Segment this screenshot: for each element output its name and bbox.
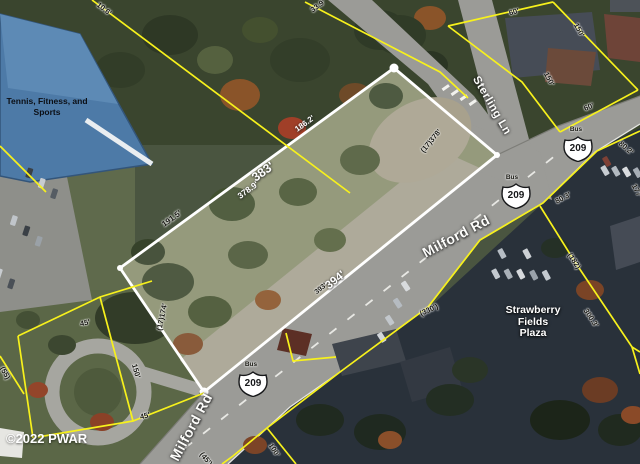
route-banner-bus: Bus — [506, 175, 518, 182]
route-number: 209 — [238, 378, 268, 389]
place-label-tennis-fitness-sports: Tennis, Fitness, and Sports — [6, 96, 87, 118]
route-number: 209 — [563, 143, 593, 154]
parcel-vertex — [117, 265, 123, 271]
route-209-shield: 209 — [238, 371, 268, 397]
route-number: 209 — [501, 190, 531, 201]
lot-dimension-label: 45' — [79, 318, 90, 327]
route-banner-bus: Bus — [245, 362, 257, 369]
place-label-strawberry-fields-plaza: Strawberry Fields Plaza — [506, 305, 561, 340]
parcel-vertex — [390, 64, 399, 73]
place-label-line: Sports — [6, 107, 87, 118]
parcel-vertex — [494, 152, 500, 158]
route-banner-bus: Bus — [570, 127, 582, 134]
route-209-shield: 209 — [501, 183, 531, 209]
place-label-line: Strawberry — [506, 305, 561, 317]
place-label-line: Plaza — [506, 328, 561, 340]
place-label-line: Tennis, Fitness, and — [6, 96, 87, 107]
route-209-shield: 209 — [563, 136, 593, 162]
aerial-map[interactable]: 186.2' 383' 378.9' 191.5' (17)378' (17)1… — [0, 0, 640, 464]
aerial-imagery — [0, 0, 640, 464]
copyright-watermark: ©2022 PWAR — [6, 432, 87, 445]
